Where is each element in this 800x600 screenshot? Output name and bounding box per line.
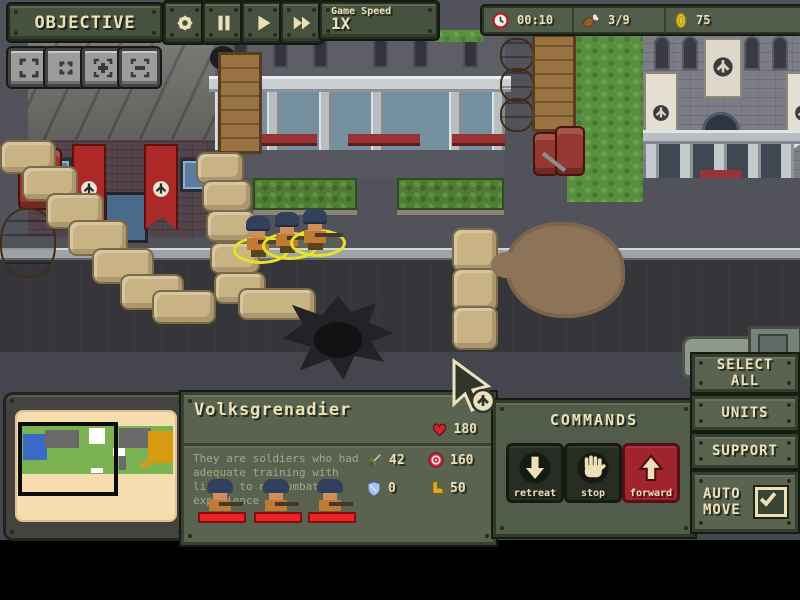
- unit-portrait[interactable]: [198, 485, 246, 523]
- retreat-button[interactable]: retreat: [506, 443, 564, 503]
- window-sill: [452, 134, 505, 146]
- rations-readout: 3/9: [572, 8, 664, 32]
- range-value: 160: [450, 453, 473, 468]
- speed-stat: 50: [428, 480, 466, 496]
- minimap-paper: [15, 410, 177, 522]
- minimap-marker: [119, 456, 126, 470]
- emblem-plaque: [704, 38, 742, 98]
- settings-button[interactable]: [164, 2, 205, 43]
- gold-readout: 75: [664, 8, 800, 32]
- support-label: SUPPORT: [712, 443, 778, 459]
- window: [413, 36, 428, 68]
- sandbag: [202, 180, 252, 212]
- view-shrink-button[interactable]: [45, 48, 86, 87]
- zoom-in-icon: [93, 58, 113, 78]
- window: [654, 36, 670, 70]
- game-speed-value: 1X: [331, 17, 436, 31]
- sandbag-wall: [452, 306, 498, 350]
- stop-button[interactable]: stop: [564, 443, 622, 503]
- unit-name: Volksgrenadier: [194, 400, 351, 420]
- soldier-rifle: [329, 502, 353, 506]
- minimap-building: [148, 431, 173, 463]
- resource-bar: 00:10 3/9 75: [482, 6, 800, 34]
- window: [772, 36, 788, 70]
- soldier-face: [213, 493, 227, 500]
- clock-icon: [492, 12, 509, 29]
- hedge-planter: [253, 178, 357, 210]
- unit-health-bar: [198, 512, 246, 523]
- zoom-in-button[interactable]: [82, 48, 123, 87]
- objective-label: OBJECTIVE: [34, 13, 135, 33]
- soldier-face: [308, 224, 322, 231]
- red-step: [700, 170, 742, 178]
- dirt-patch: [505, 222, 625, 318]
- window: [682, 36, 698, 70]
- coin-icon: [674, 12, 688, 29]
- mouse-cursor: [450, 358, 502, 414]
- expand-corners-icon: [19, 58, 39, 78]
- soldier-legs: [308, 243, 323, 250]
- unit-health-bar: [308, 512, 356, 523]
- auto-move-checkbox[interactable]: [755, 487, 787, 517]
- crate-stack: [218, 52, 262, 154]
- objective-button[interactable]: OBJECTIVE: [8, 4, 162, 41]
- auto-move-label: AUTO MOVE: [703, 486, 759, 518]
- checkmark-icon: [758, 490, 778, 508]
- game-window: { "toolbar": { "objective": "OBJECTIVE",…: [0, 0, 800, 600]
- arrow-up-icon: [634, 451, 668, 485]
- units-label: UNITS: [721, 405, 768, 421]
- column: [319, 92, 332, 150]
- building-base: [215, 150, 505, 178]
- select-all-button[interactable]: SELECT ALL: [692, 354, 798, 392]
- boot-icon: [428, 480, 444, 496]
- gear-icon: [172, 10, 198, 36]
- truck-window: [758, 334, 788, 354]
- column: [748, 144, 761, 178]
- armor-stat: 0: [366, 480, 396, 497]
- column: [781, 144, 794, 178]
- minimap-viewport[interactable]: [18, 422, 118, 496]
- soldier-rifle: [275, 502, 299, 506]
- minimap-marker: [141, 462, 150, 467]
- soldier-helmet: [207, 479, 233, 493]
- zoom-out-icon: [130, 58, 150, 78]
- timer-value: 00:10: [517, 13, 553, 27]
- column: [680, 144, 693, 178]
- shrink-corners-icon: [56, 58, 76, 78]
- soldier-rifle: [219, 502, 243, 506]
- barrel: [500, 98, 534, 132]
- retreat-label: retreat: [509, 488, 561, 499]
- gold-value: 75: [696, 13, 710, 27]
- column: [646, 144, 659, 178]
- heart-icon: [431, 421, 448, 437]
- commands-title: COMMANDS: [496, 411, 692, 429]
- unit-portrait[interactable]: [254, 485, 302, 523]
- play-icon: [252, 12, 274, 34]
- crate-stack: [532, 34, 576, 132]
- faction-emblem-icon: [712, 56, 734, 78]
- select-all-label: SELECT ALL: [710, 357, 780, 389]
- sandbag: [152, 290, 216, 324]
- soldier-helmet: [263, 479, 289, 493]
- arrow-down-icon: [518, 451, 552, 485]
- sword-icon: [366, 452, 383, 469]
- units-button[interactable]: UNITS: [692, 396, 798, 430]
- soldier-face: [280, 227, 294, 234]
- hand-stop-icon: [576, 451, 610, 485]
- faction-emblem-icon: [794, 104, 800, 122]
- attack-stat: 42: [366, 452, 405, 469]
- grass-patch: [567, 30, 643, 202]
- soldier-rifle: [315, 233, 343, 237]
- unit-info-panel: Volksgrenadier 180 They are soldiers who…: [181, 392, 496, 545]
- window: [744, 36, 760, 70]
- unit-portrait[interactable]: [308, 485, 356, 523]
- timer-readout: 00:10: [484, 8, 572, 32]
- soldier-face: [269, 493, 283, 500]
- faction-emblem-icon: [152, 180, 170, 198]
- window-sill: [348, 134, 420, 146]
- soldier-helmet: [303, 209, 327, 222]
- ledge: [640, 130, 800, 144]
- grass-patch: [435, 30, 483, 42]
- fast-forward-button[interactable]: [281, 2, 322, 43]
- attack-value: 42: [389, 453, 405, 468]
- pause-button[interactable]: [203, 2, 244, 43]
- range-stat: 160: [428, 452, 473, 468]
- health-stat: 180: [431, 421, 477, 437]
- barrel: [500, 68, 534, 102]
- health-value: 180: [454, 422, 477, 437]
- unit-health-bar: [254, 512, 302, 523]
- soldier-face: [323, 493, 337, 500]
- forward-label: forward: [625, 488, 677, 499]
- bank-building: [640, 30, 800, 178]
- minimap-building: [119, 428, 151, 448]
- soldier-unit[interactable]: [300, 209, 330, 255]
- minimap[interactable]: [3, 392, 189, 541]
- armor-value: 0: [388, 481, 396, 496]
- soldier-face: [251, 231, 265, 238]
- stop-label: stop: [567, 488, 619, 499]
- fast-forward-icon: [291, 12, 313, 34]
- target-icon: [428, 452, 444, 468]
- faction-emblem-icon: [652, 104, 670, 122]
- zoom-out-button[interactable]: [119, 48, 160, 87]
- soldier-helmet: [275, 212, 299, 225]
- drumstick-icon: [582, 11, 600, 29]
- soldier-helmet: [246, 216, 270, 229]
- hedge-planter: [397, 178, 504, 210]
- shield-icon: [366, 480, 382, 497]
- soldier-helmet: [317, 479, 343, 493]
- game-speed-display: Game Speed 1X: [320, 2, 438, 39]
- auto-move-button[interactable]: AUTO MOVE: [692, 472, 798, 532]
- view-expand-button[interactable]: [8, 48, 49, 87]
- window: [373, 36, 388, 68]
- speed-value: 50: [450, 481, 466, 496]
- pause-icon: [213, 12, 235, 34]
- divider: [184, 443, 493, 446]
- play-button[interactable]: [242, 2, 283, 43]
- rations-value: 3/9: [608, 13, 630, 27]
- support-button[interactable]: SUPPORT: [692, 434, 798, 468]
- commands-panel: COMMANDS retreat stop forward: [493, 400, 695, 537]
- barrel: [500, 38, 534, 72]
- forward-button[interactable]: forward: [622, 443, 680, 503]
